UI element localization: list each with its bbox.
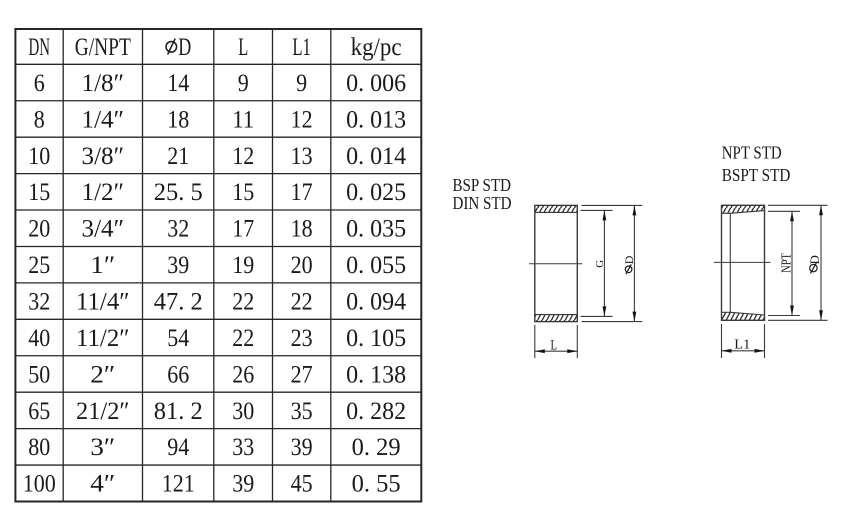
svg-text:30: 30 [232,398,254,425]
svg-text:45: 45 [291,471,313,498]
svg-text:0. 006: 0. 006 [346,70,406,97]
svg-text:D: D [807,255,822,264]
svg-text:17: 17 [291,179,313,206]
svg-text:0. 035: 0. 035 [346,216,406,243]
svg-text:NPT STD: NPT STD [722,143,782,163]
svg-text:39: 39 [167,252,189,279]
svg-text:81. 2: 81. 2 [154,398,203,425]
svg-text:BSP STD: BSP STD [453,175,512,195]
svg-text:25: 25 [28,252,50,279]
svg-text:22: 22 [232,289,254,316]
svg-text:22: 22 [232,325,254,352]
svg-text:L1: L1 [292,34,311,61]
svg-text:9: 9 [296,70,307,97]
svg-text:L1: L1 [734,338,750,353]
svg-text:DN: DN [29,34,51,61]
svg-text:12: 12 [291,106,313,133]
svg-text:1/4″: 1/4″ [82,106,125,133]
svg-text:94: 94 [167,434,189,461]
svg-text:20: 20 [291,252,313,279]
svg-text:18: 18 [167,106,189,133]
svg-text:9: 9 [238,70,249,97]
svg-text:10: 10 [28,143,50,170]
svg-text:kg/pc: kg/pc [351,34,402,61]
svg-text:35: 35 [291,398,313,425]
svg-text:47. 2: 47. 2 [154,289,203,316]
svg-text:25. 5: 25. 5 [154,179,203,206]
svg-text:NPT: NPT [780,253,795,273]
svg-text:40: 40 [28,325,50,352]
svg-text:3/4″: 3/4″ [82,216,125,243]
svg-text:39: 39 [291,434,313,461]
svg-text:0. 014: 0. 014 [346,143,406,170]
svg-text:23: 23 [291,325,313,352]
svg-text:0. 025: 0. 025 [346,179,406,206]
svg-text:11/4″: 11/4″ [76,289,130,316]
svg-text:80: 80 [28,434,50,461]
svg-text:1/2″: 1/2″ [82,179,125,206]
svg-text:0. 138: 0. 138 [346,361,406,388]
svg-text:26: 26 [232,361,254,388]
svg-text:54: 54 [167,325,189,352]
svg-text:11/2″: 11/2″ [76,325,130,352]
svg-text:0. 055: 0. 055 [346,252,406,279]
svg-text:0. 094: 0. 094 [346,289,406,316]
svg-text:17: 17 [232,216,254,243]
svg-text:66: 66 [167,361,189,388]
svg-text:18: 18 [291,216,313,243]
svg-text:14: 14 [167,70,189,97]
svg-text:D: D [178,34,191,61]
svg-text:3″: 3″ [90,434,115,461]
svg-text:G/NPT: G/NPT [75,34,131,61]
svg-text:2″: 2″ [90,361,115,388]
svg-text:15: 15 [28,179,50,206]
svg-text:50: 50 [28,361,50,388]
svg-text:13: 13 [291,143,313,170]
svg-text:100: 100 [23,471,56,498]
svg-text:32: 32 [28,289,50,316]
svg-text:D: D [622,255,636,264]
svg-text:DIN STD: DIN STD [453,193,512,213]
svg-text:15: 15 [232,179,254,206]
svg-text:1/8″: 1/8″ [82,70,125,97]
svg-text:6: 6 [34,70,45,97]
svg-text:4″: 4″ [90,471,115,498]
svg-text:27: 27 [291,361,313,388]
svg-text:39: 39 [232,471,254,498]
svg-text:3/8″: 3/8″ [82,143,125,170]
svg-text:1″: 1″ [90,252,115,279]
svg-text:11: 11 [232,106,254,133]
svg-text:0. 105: 0. 105 [346,325,406,352]
svg-text:12: 12 [232,143,254,170]
svg-text:21: 21 [167,143,189,170]
svg-text:21/2″: 21/2″ [76,398,130,425]
svg-text:19: 19 [232,252,254,279]
svg-text:0. 29: 0. 29 [352,434,401,461]
svg-text:32: 32 [167,216,189,243]
svg-text:0. 013: 0. 013 [346,106,406,133]
svg-text:BSPT STD: BSPT STD [722,165,791,185]
svg-text:65: 65 [28,398,50,425]
svg-text:8: 8 [34,106,45,133]
svg-text:22: 22 [291,289,313,316]
svg-text:L: L [550,338,557,354]
svg-text:0. 282: 0. 282 [346,398,406,425]
svg-text:20: 20 [28,216,50,243]
svg-text:121: 121 [162,471,195,498]
svg-text:L: L [238,34,248,61]
svg-text:G: G [594,260,606,268]
svg-text:33: 33 [232,434,254,461]
svg-text:0. 55: 0. 55 [352,471,401,498]
